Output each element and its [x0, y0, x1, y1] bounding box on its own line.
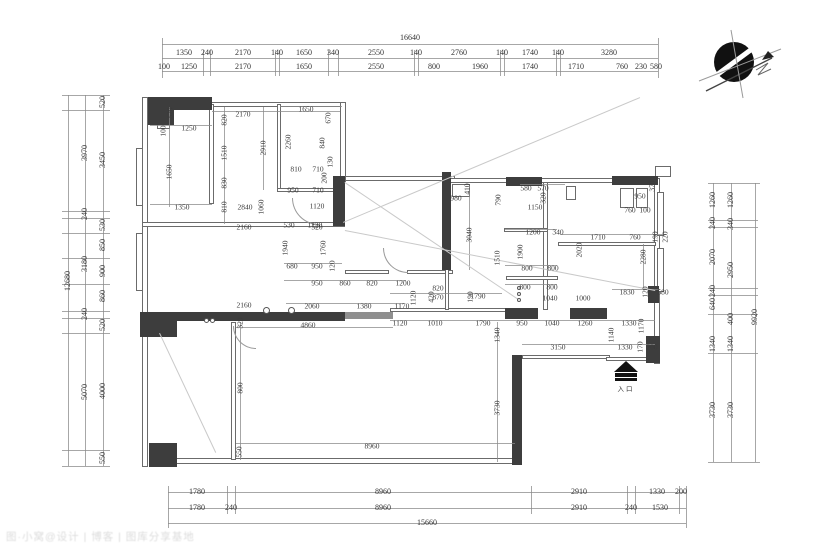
wall-thin — [506, 276, 558, 280]
wall-segment — [333, 176, 345, 226]
dim-label: 1260 — [578, 319, 593, 327]
dim-label: 800 — [521, 264, 532, 272]
dim-label: 1040 — [545, 319, 560, 327]
dim-label: 1780 — [189, 504, 205, 512]
dim-line — [168, 492, 686, 493]
dim-label: 2170 — [235, 63, 251, 71]
dim-label: 1650 — [165, 165, 173, 180]
dim-label: 680 — [286, 262, 297, 270]
dim-label: 1380 — [357, 302, 372, 310]
dim-line — [103, 95, 104, 466]
dim-label: 2170 — [235, 49, 251, 57]
dim-label: 140 — [410, 49, 422, 57]
wall-segment-gray — [345, 312, 393, 319]
dim-label: 170 — [636, 341, 644, 352]
dim-label: 1350 — [176, 49, 192, 57]
wall-thin — [340, 102, 346, 182]
dim-line — [497, 322, 498, 462]
dim-label: 1140 — [607, 328, 615, 343]
dim-label: 2160 — [237, 301, 252, 309]
leader-line — [159, 333, 216, 452]
dim-line — [162, 44, 658, 45]
dim-label: 1510 — [220, 146, 228, 161]
wall-thin — [277, 104, 281, 190]
dim-label: 340 — [327, 49, 339, 57]
dim-label: 100 — [159, 125, 167, 136]
dim-label: 760 — [624, 206, 635, 214]
dim-label: 790 — [494, 194, 502, 205]
dim-label: 1740 — [522, 63, 538, 71]
dim-label: 800 — [547, 264, 558, 272]
dim-label: 320 — [236, 317, 244, 328]
wall-thin — [566, 186, 576, 200]
leader-line — [343, 97, 640, 223]
dim-label: 2910 — [571, 488, 587, 496]
dim-label: 240 — [625, 504, 637, 512]
dim-label: 3180 — [81, 256, 89, 272]
dim-label: 3730 — [727, 402, 735, 418]
fixture-circle — [288, 307, 295, 314]
dim-line — [62, 110, 110, 111]
dim-label: 1260 — [727, 192, 735, 208]
dim-label: 100 — [158, 63, 170, 71]
entrance-bar — [615, 378, 637, 381]
dim-label: 140 — [271, 49, 283, 57]
dim-label: 240 — [225, 504, 237, 512]
dim-label: 1790 — [471, 292, 486, 300]
door-arc — [233, 326, 256, 349]
dim-label: 2910 — [571, 504, 587, 512]
dim-label: 3730 — [493, 401, 501, 416]
dim-label: 1780 — [189, 488, 205, 496]
dim-label: 1340 — [709, 336, 717, 352]
dim-label: 1340 — [493, 328, 501, 343]
dim-label: 140 — [552, 49, 564, 57]
dim-label: 1250 — [181, 63, 197, 71]
dim-label: 370 — [648, 180, 656, 191]
dim-label: 520 — [311, 223, 322, 231]
fixture-circle — [517, 298, 521, 302]
entrance-label: 入口 — [613, 383, 639, 393]
dim-line — [168, 508, 686, 509]
dim-label: 1200 — [526, 228, 541, 236]
dim-label: 1900 — [516, 245, 524, 260]
dim-label: 1530 — [652, 504, 668, 512]
entrance-triangle — [614, 361, 638, 372]
dim-label: 100 — [639, 206, 650, 214]
dim-line — [162, 38, 163, 78]
dim-label: 8960 — [375, 504, 391, 512]
dim-label: 8960 — [375, 488, 391, 496]
dim-label: 2550 — [368, 63, 384, 71]
dim-label: 1250 — [182, 124, 197, 132]
watermark: 图·小窝@设计 | 博客 | 图库分享基地 — [6, 529, 195, 544]
dim-label: 810 — [290, 165, 301, 173]
dim-label: 240 — [709, 217, 717, 229]
wall-thin — [522, 355, 610, 359]
dim-label: 1650 — [296, 63, 312, 71]
dim-label: 410 — [463, 183, 471, 194]
dim-label: 420 — [427, 291, 435, 302]
dim-label: 950 — [516, 319, 527, 327]
dim-label: 520 — [166, 107, 174, 118]
dim-label: 240 — [709, 285, 717, 297]
dim-label: 820 — [366, 279, 377, 287]
dim-label: 1170 — [637, 319, 645, 334]
dim-line — [708, 183, 760, 184]
dim-label: 950 — [287, 186, 298, 194]
dim-line — [708, 462, 760, 463]
dim-label: 710 — [312, 186, 323, 194]
dim-label: 570 — [537, 184, 548, 192]
dim-label: 580 — [520, 184, 531, 192]
dim-label: 1200 — [396, 279, 411, 287]
dim-label: 220 — [661, 231, 669, 242]
dim-label: 1150 — [528, 203, 543, 211]
dim-label: 950 — [311, 262, 322, 270]
dim-line — [658, 38, 659, 78]
wall-thin — [345, 176, 455, 181]
dim-label: 4860 — [301, 321, 316, 329]
dim-label: 8960 — [365, 442, 380, 450]
wall-thin — [345, 270, 389, 274]
dim-label: 640 — [709, 298, 717, 310]
north-compass-icon — [698, 28, 782, 100]
dim-label: 2160 — [237, 223, 252, 231]
dim-label: 1350 — [175, 203, 190, 211]
dim-label: 860 — [339, 279, 350, 287]
dim-label: 1120 — [409, 291, 417, 306]
dim-label: 1740 — [522, 49, 538, 57]
dim-line — [531, 486, 532, 514]
dim-label: 1120 — [393, 319, 408, 327]
dim-label: 1960 — [472, 63, 488, 71]
dim-label: 820 — [220, 114, 228, 125]
dim-label: 1340 — [727, 336, 735, 352]
dim-label: 16640 — [400, 34, 420, 42]
dim-label: 860 — [99, 290, 107, 302]
dim-label: 670 — [324, 112, 332, 123]
wall-thin — [209, 104, 214, 204]
dim-line — [169, 107, 170, 207]
dim-label: 550 — [99, 452, 107, 464]
fixture-circle — [517, 292, 521, 296]
dim-label: 140 — [496, 49, 508, 57]
dim-line — [162, 71, 658, 72]
wall-thin — [136, 148, 143, 206]
dim-label: 200 — [675, 488, 687, 496]
dim-label: 1710 — [568, 63, 584, 71]
dim-label: 230 — [635, 63, 647, 71]
dim-label: 1330 — [649, 488, 665, 496]
dim-label: 840 — [318, 137, 326, 148]
dim-label: 1330 — [618, 343, 633, 351]
dim-label: 2260 — [284, 135, 292, 150]
dim-label: 1060 — [257, 200, 265, 215]
dim-label: 3730 — [709, 402, 717, 418]
dim-label: 1650 — [299, 105, 314, 113]
dim-label: 3150 — [551, 343, 566, 351]
wall-thin — [445, 268, 449, 310]
dim-label: 1120 — [310, 202, 325, 210]
dim-label: 200 — [320, 172, 328, 183]
wall-segment — [149, 443, 177, 467]
dim-line — [62, 233, 110, 234]
wall-thin — [136, 233, 143, 291]
dim-label: 980 — [450, 194, 461, 202]
dim-label: 2840 — [238, 203, 253, 211]
dim-label: 3040 — [465, 228, 473, 243]
dim-label: 1260 — [709, 192, 717, 208]
dim-label: 1830 — [620, 288, 635, 296]
dim-label: 2950 — [727, 262, 735, 278]
dim-label: 530 — [99, 219, 107, 231]
dim-line — [212, 111, 340, 112]
dim-label: 800 — [428, 63, 440, 71]
dim-label: 2170 — [236, 110, 251, 118]
fixture-circle — [263, 307, 270, 314]
dim-label: 580 — [650, 63, 662, 71]
dim-label: 3450 — [99, 152, 107, 168]
dim-label: 530 — [283, 221, 294, 229]
dim-label: 550 — [235, 446, 243, 457]
dim-label: 5070 — [81, 384, 89, 400]
dim-label: 120 — [328, 260, 336, 271]
dim-label: 830 — [220, 177, 228, 188]
dim-label: 850 — [99, 239, 107, 251]
dim-label: 200 — [646, 343, 657, 351]
dim-label: 400 — [727, 313, 735, 325]
dim-line — [62, 450, 110, 451]
dim-line — [62, 333, 110, 334]
dim-label: 900 — [99, 265, 107, 277]
dim-label: 2550 — [368, 49, 384, 57]
dim-label: 190 — [651, 231, 659, 242]
wall-thin — [558, 242, 656, 246]
dim-label: 1330 — [622, 319, 637, 327]
dim-label: 800 — [519, 283, 530, 291]
dim-label: 2060 — [305, 302, 320, 310]
dim-label: 12680 — [64, 271, 72, 291]
dim-line — [168, 486, 169, 528]
dim-label: 130 — [326, 156, 334, 167]
dim-label: 15660 — [417, 519, 437, 527]
dim-label: 950 — [311, 279, 322, 287]
dim-line — [162, 58, 658, 59]
dim-label: 2760 — [451, 49, 467, 57]
dim-label: 1170 — [395, 302, 410, 310]
fixture-circle — [210, 318, 215, 323]
dim-label: 1000 — [576, 294, 591, 302]
wall-segment — [512, 355, 522, 465]
dim-label: 2020 — [575, 243, 583, 258]
wall-thin — [176, 458, 520, 464]
dim-label: 1940 — [281, 241, 289, 256]
dim-label: 580 — [657, 288, 668, 296]
dim-label: 1710 — [591, 233, 606, 241]
entrance-bar — [615, 373, 637, 377]
dim-label: 1010 — [428, 319, 443, 327]
dim-label: 520 — [99, 96, 107, 108]
dim-label: 1510 — [493, 251, 501, 266]
dim-label: 2910 — [259, 141, 267, 156]
dim-label: 760 — [629, 233, 640, 241]
fixture-circle — [204, 318, 209, 323]
dim-label: 240 — [201, 49, 213, 57]
dim-label: 1790 — [476, 319, 491, 327]
wall-segment — [442, 172, 451, 270]
dim-label: 2070 — [709, 249, 717, 265]
dim-line — [708, 353, 758, 354]
dim-label: 3280 — [601, 49, 617, 57]
dim-label: 240 — [81, 208, 89, 220]
dim-label: 760 — [616, 63, 628, 71]
dim-label: 3970 — [81, 145, 89, 161]
dim-label: 810 — [220, 201, 228, 212]
entrance-arrow-icon: 入口 — [613, 361, 639, 393]
dim-label: 2280 — [639, 250, 647, 265]
dim-label: 1760 — [319, 241, 327, 256]
dim-label: 520 — [99, 319, 107, 331]
dim-line — [62, 466, 110, 467]
dim-label: 1040 — [543, 294, 558, 302]
dim-label: 800 — [546, 283, 557, 291]
dim-label: 1650 — [296, 49, 312, 57]
dim-label: 340 — [727, 218, 735, 230]
dim-label: 950 — [634, 192, 645, 200]
dim-label: 120 — [641, 286, 649, 297]
dim-label: 240 — [81, 308, 89, 320]
dim-label: 800 — [236, 382, 244, 393]
dim-label: 4000 — [99, 383, 107, 399]
dim-label: 9920 — [751, 309, 759, 325]
dim-label: 340 — [552, 228, 563, 236]
wall-thin — [657, 192, 664, 236]
floorplan-canvas: 入口 图·小窝@设计 | 博客 | 图库分享基地 166401350240217… — [0, 0, 828, 552]
